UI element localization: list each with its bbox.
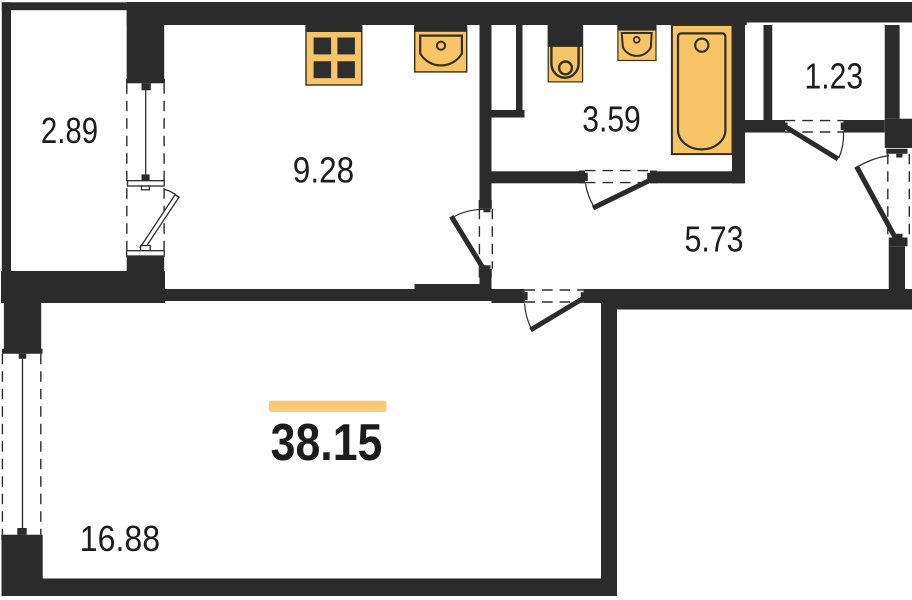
svg-text:38.15: 38.15 <box>271 414 383 472</box>
svg-text:3.59: 3.59 <box>582 99 641 140</box>
svg-text:1.23: 1.23 <box>805 56 864 97</box>
svg-text:5.73: 5.73 <box>684 219 743 260</box>
svg-text:2.89: 2.89 <box>41 110 98 151</box>
svg-text:16.88: 16.88 <box>80 518 160 559</box>
svg-text:9.28: 9.28 <box>293 150 354 191</box>
